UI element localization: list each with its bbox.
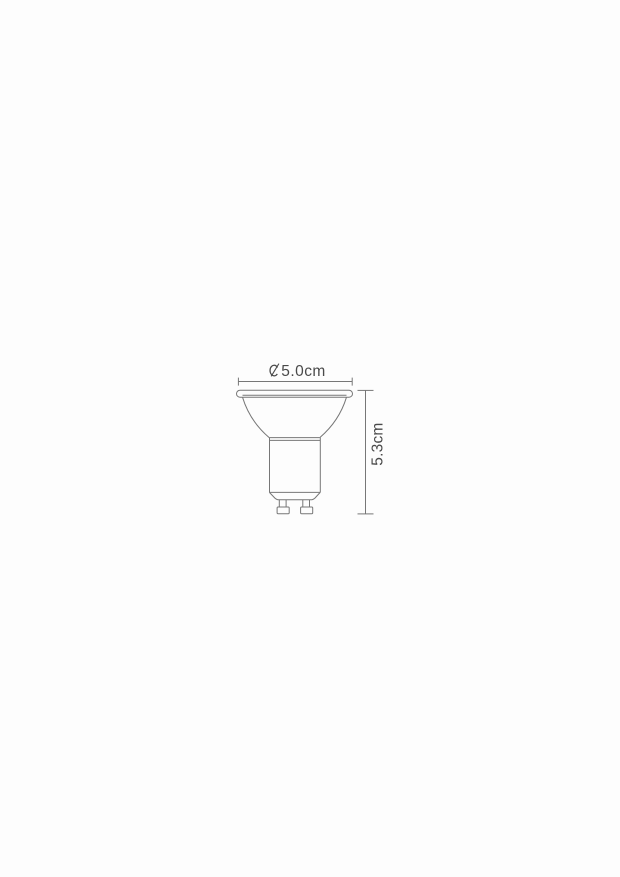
svg-text:5.0cm: 5.0cm [281,363,325,380]
svg-text:5.3cm: 5.3cm [370,422,387,465]
